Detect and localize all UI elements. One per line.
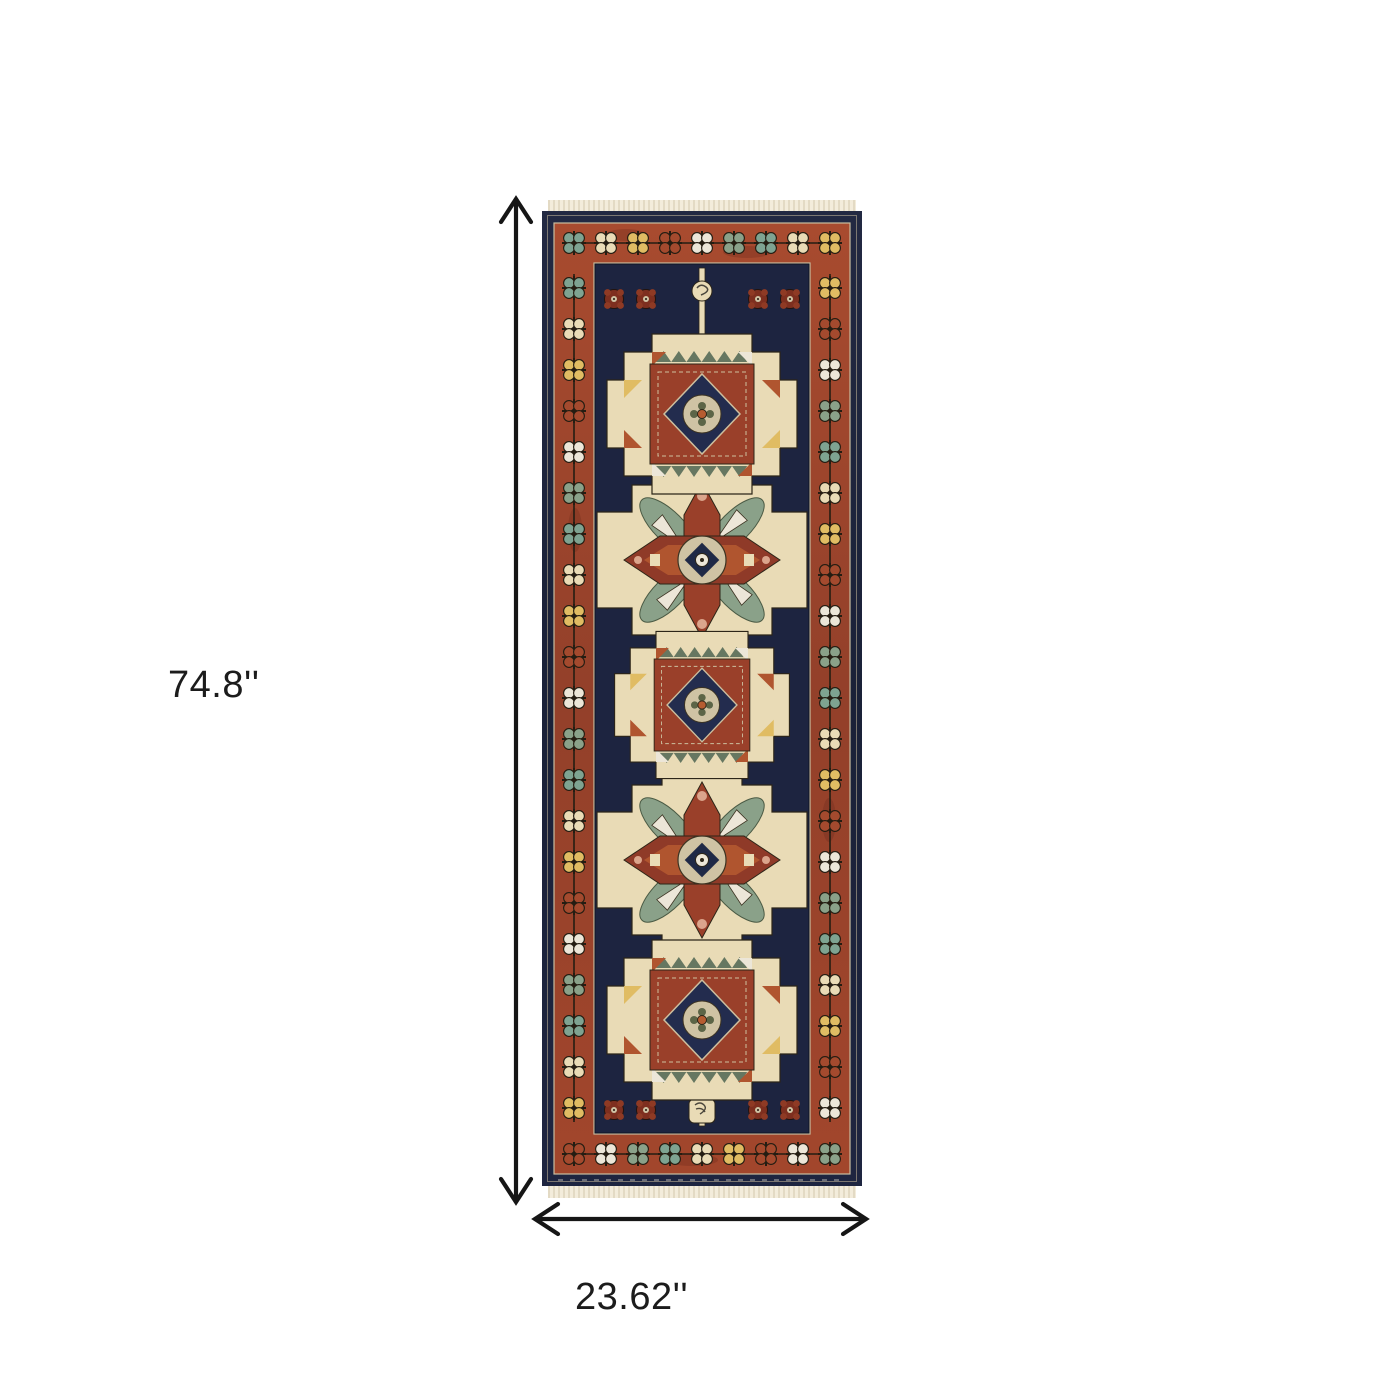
height-arrow [501, 199, 531, 1202]
width-dimension-label: 23.62'' [575, 1276, 688, 1319]
top-pendant [692, 281, 712, 301]
product-dimension-diagram: 74.8'' 23.62'' [0, 0, 1400, 1400]
medallion-3-geometric [615, 631, 790, 778]
oriental-runner-rug [542, 200, 862, 1198]
rug-fringe-top [548, 200, 856, 212]
rug-field [595, 264, 809, 1133]
rug-image [542, 200, 862, 1198]
rug-fringe-bottom [548, 1186, 856, 1198]
height-dimension-label: 74.8'' [168, 664, 259, 707]
bottom-pendant [689, 1099, 715, 1123]
width-arrow [535, 1204, 866, 1234]
medallion-1-geometric [607, 334, 797, 494]
medallion-5-geometric [607, 940, 797, 1100]
